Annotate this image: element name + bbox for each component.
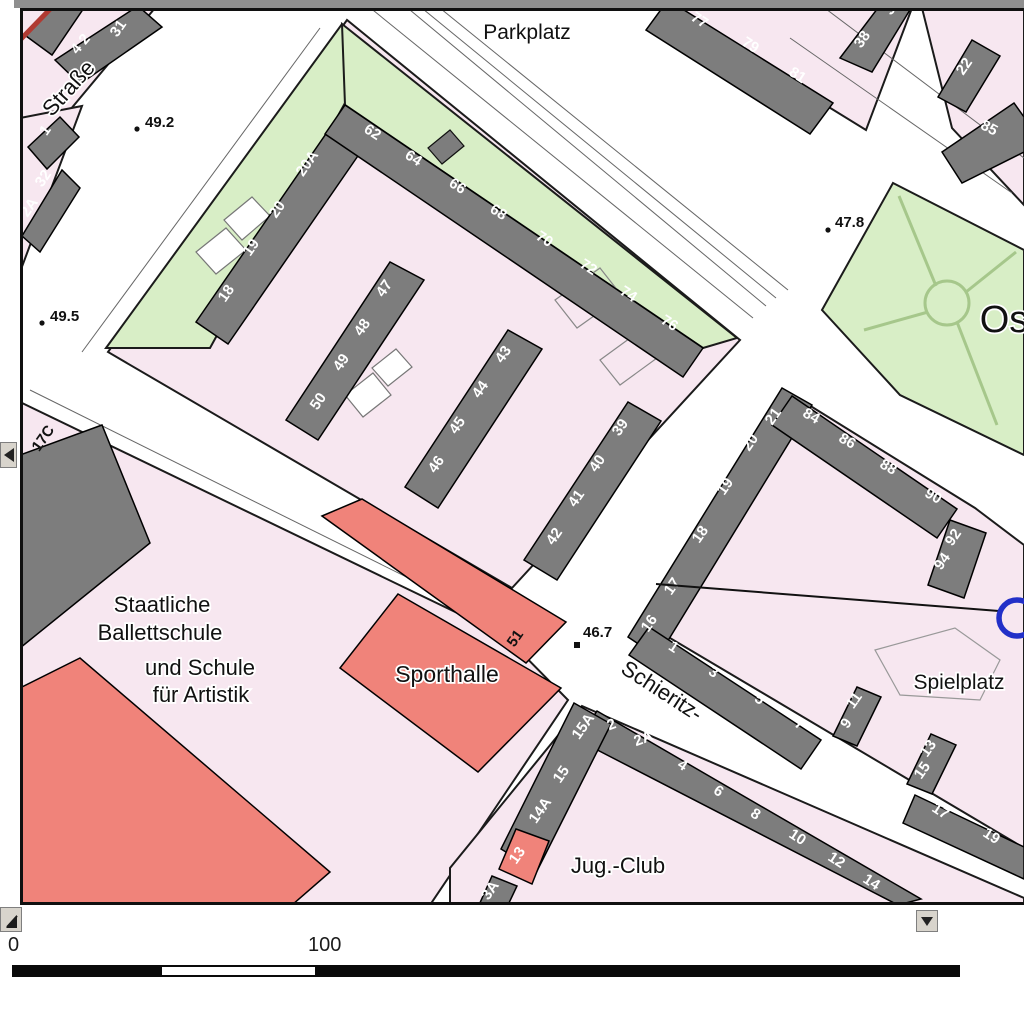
map-border-top: [20, 8, 1024, 11]
map-canvas[interactable]: 4 2311322A18192020A626466687072747650494…: [0, 0, 1024, 1010]
down-arrow-icon: [921, 917, 933, 926]
map-label-spielplatz: Spielplatz: [913, 671, 1004, 694]
elevation-marker-49-2: [134, 126, 139, 131]
left-arrow-icon: [4, 448, 14, 462]
elevation-label-46-7: 46.7: [583, 624, 612, 641]
map-border-left: [20, 8, 23, 905]
elevation-label-49-2: 49.2: [145, 114, 174, 131]
elevation-marker-49-5: [39, 320, 44, 325]
map-label-jug-club: Jug.-Club: [571, 853, 665, 878]
scale-bar: [12, 965, 960, 977]
map-label-f-r-artistik: für Artistik: [153, 682, 251, 707]
scroll-left-button[interactable]: [0, 442, 17, 468]
elevation-marker-46-7: [574, 642, 580, 648]
scale-label-hundred: 100: [308, 934, 341, 957]
map-label-ballettschule: Ballettschule: [98, 620, 223, 645]
window-top-edge: [14, 0, 1024, 8]
elevation-marker-47-8: [825, 227, 830, 232]
map-label-parkplatz: Parkplatz: [483, 21, 571, 44]
pan-arrow-icon: [2, 909, 20, 931]
scale-label-zero: 0: [8, 934, 19, 957]
map-viewer-window: 4 2311322A18192020A626466687072747650494…: [0, 0, 1024, 1010]
map-label-staatliche: Staatliche: [114, 592, 211, 617]
pan-tool-button[interactable]: [0, 907, 22, 932]
elevation-label-49-5: 49.5: [50, 308, 79, 325]
map-label-sporthalle: Sporthalle: [395, 661, 499, 687]
scroll-down-button[interactable]: [916, 910, 938, 932]
map-border-bottom: [20, 902, 1024, 905]
elevation-label-47-8: 47.8: [835, 214, 864, 231]
map-label-os: Os: [980, 299, 1024, 341]
map-label-und-schule: und Schule: [145, 655, 255, 680]
scale-bar-segment: [162, 967, 315, 975]
